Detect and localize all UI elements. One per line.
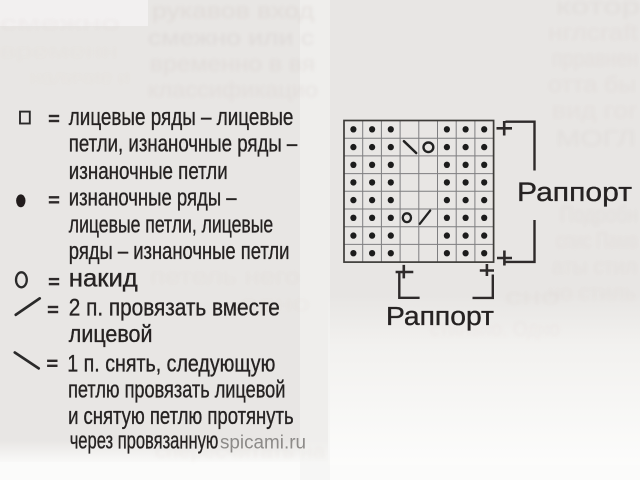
svg-text:но стиль: но стиль — [548, 280, 636, 305]
svg-text:котор: котор — [556, 0, 640, 19]
svg-text:через провязанную: через провязанную — [70, 428, 219, 455]
svg-text:МОГЛ: МОГЛ — [556, 126, 636, 151]
svg-text:2 п. провязать вместе: 2 п. провязать вместе — [69, 295, 280, 322]
svg-text:лицевой: лицевой — [69, 321, 153, 348]
svg-text:лицевые петли, лицевые: лицевые петли, лицевые — [69, 212, 273, 239]
svg-text:смежно: смежно — [0, 13, 120, 35]
svg-text:нглcraft: нглcraft — [548, 20, 638, 45]
svg-text:накид: накид — [69, 265, 138, 292]
svg-text:и снятую петлю протянуть: и снятую петлю протянуть — [68, 403, 294, 430]
svg-text:смежно или с: смежно или с — [148, 26, 314, 50]
svg-text:аты стил: аты стил — [552, 254, 637, 279]
svg-text:петли, изнаночные ряды –: петли, изнаночные ряды – — [69, 131, 298, 158]
svg-text:ряды – изнаночные петли: ряды – изнаночные петли — [69, 238, 290, 265]
svg-text:изнаночные петли: изнаночные петли — [69, 158, 228, 185]
svg-text:вид гor: вид гor — [552, 98, 637, 123]
svg-text:лицевые ряды – лицевые: лицевые ряды – лицевые — [69, 104, 294, 131]
svg-text:наличие и: наличие и — [30, 67, 130, 89]
svg-text:отта бы: отта бы — [548, 72, 636, 97]
svg-text:изнаночные ряды –: изнаночные ряды – — [69, 184, 237, 211]
svg-text:классификацио: классификацио — [148, 78, 318, 102]
svg-text:временн: временн — [0, 41, 118, 63]
svg-text:петлю провязать лицевой: петлю провязать лицевой — [68, 377, 285, 404]
svg-text:спис Памв: спис Памв — [556, 228, 638, 253]
svg-text:рукавов вход: рукавов вход — [152, 0, 315, 23]
svg-text:Раппорт: Раппорт — [517, 177, 632, 207]
svg-text:петель него: петель него — [150, 264, 300, 289]
svg-text:прравнен: прравнен — [552, 46, 638, 71]
svg-text:сно: сно — [505, 286, 560, 309]
svg-text:spicami.ru: spicami.ru — [220, 433, 306, 454]
svg-text:1 п. снять, следующую: 1 п. снять, следующую — [67, 351, 275, 378]
svg-text:временно в вя: временно в вя — [150, 52, 315, 76]
svg-text:Раппорт: Раппорт — [386, 303, 494, 331]
